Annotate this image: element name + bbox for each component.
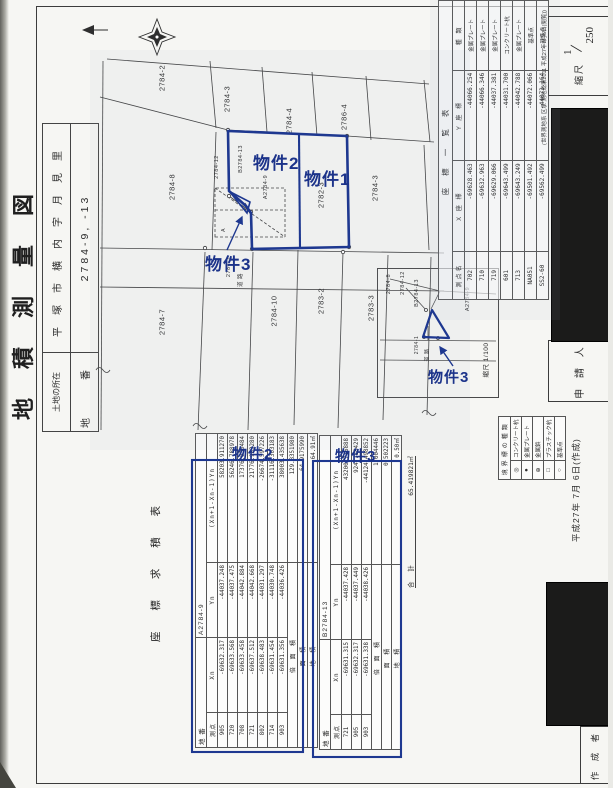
redaction-box — [546, 582, 609, 726]
column-header: X 座 標 — [453, 161, 465, 252]
area-table-row: 903 -69631.338 -44038.426 -44124.498852 — [362, 436, 372, 750]
yn-value: -44037.475 — [228, 563, 238, 638]
table-header-row: 測点 Xn Yn (Xn+1-Xn-1)Yn — [207, 434, 218, 748]
legend-row: ⊕ 金属鋲 — [533, 417, 544, 480]
xn-value: -69637.512 — [248, 638, 258, 713]
summary-value: 64.9175990 — [298, 434, 308, 563]
x-coordinate: -69632.963 — [477, 161, 489, 252]
xn-value: -69638.483 — [258, 638, 268, 713]
redaction-box — [551, 108, 609, 342]
yn-value: -44030.748 — [268, 563, 278, 638]
marker-kind: 金属プレート — [477, 1, 489, 71]
parcel-label: A2784-9 — [263, 175, 269, 199]
product-value: 58203.911270 — [218, 434, 228, 563]
coordinate-table-row: 601 -69643.499 -44031.700 コンクリート杭 — [501, 1, 513, 300]
area-table-section-label: 座 標 求 積 表 — [148, 497, 163, 642]
total-label: 合 計 — [405, 561, 415, 588]
yn-value: -44037.428 — [342, 565, 352, 640]
coordinate-table-row: 710 -69632.963 -44066.346 金属プレート — [477, 1, 489, 300]
summary-label: 倍 面 積 — [372, 565, 382, 750]
summary-label: 地 積 — [308, 563, 318, 748]
total-area-row: 合 計 65.419821㎡ — [403, 456, 416, 588]
point-name: 903 — [278, 713, 288, 748]
author-label-cell: 作 成 者 — [580, 726, 609, 784]
x-coordinate: -69501.492 — [525, 161, 537, 252]
parcel-label: 2783-3 — [367, 295, 376, 321]
parcel-header-value: A2784-9 — [196, 434, 207, 638]
area-table-row: 903 -69631.356 -44036.426 38003.435638 — [278, 434, 288, 748]
legend-row: □ プラスチック杭 — [544, 417, 555, 480]
summary-value: 129.8351980 — [288, 434, 298, 563]
property2-label: 物件2 — [253, 149, 299, 174]
yn-value: -44042.884 — [238, 563, 248, 638]
column-header: Yn — [331, 565, 342, 640]
parcel-label: B2784-13 — [238, 145, 244, 173]
marker-kind: 基準点 — [525, 1, 537, 71]
parcel-label: 2784-3 — [371, 175, 380, 201]
parcel-label: 2784-12 — [214, 155, 220, 179]
point-name: 714 — [268, 713, 278, 748]
inset-road-label: 道 路 — [424, 349, 431, 362]
area-summary-row: 地 積 0.50㎡ — [392, 436, 402, 750]
point-name: 903 — [362, 715, 372, 750]
marker-name: 金属プレート — [522, 417, 533, 461]
yn-value: -44037.449 — [352, 565, 362, 640]
point-name: 710 — [477, 251, 489, 299]
marker-name: プラスチック杭 — [544, 417, 555, 461]
point-name: 702 — [465, 251, 477, 299]
scale-denominator: 250 — [584, 27, 596, 44]
summary-label: 地 積 — [392, 565, 402, 750]
parcel-label: 2784-4 — [285, 108, 294, 134]
scanned-survey-document-page: 地積測量図 土地の所在 平塚市横内字月見里 地 番 2784-9, -13 — [0, 0, 613, 788]
marker-name: 基準点 — [555, 417, 566, 461]
xn-value: -69631.315 — [342, 640, 352, 715]
bukken2-table-title: 物件2 — [232, 443, 273, 464]
column-header: Xn — [331, 640, 342, 715]
marker-name: コンクリート杭 — [511, 417, 522, 461]
building-label: A — [221, 228, 227, 232]
bukken3-table-title: 物件3 — [335, 445, 376, 466]
scale-label: 縮尺 — [572, 63, 585, 85]
table-header-row: 測点 Xn Yn (Xn+1-Xn-1)Yn — [331, 436, 342, 750]
marker-symbol-icon: ● — [522, 461, 533, 480]
yn-value: -44031.297 — [258, 563, 268, 638]
y-coordinate: -44042.788 — [513, 70, 525, 161]
y-coordinate: -44031.700 — [501, 70, 513, 161]
coordinate-table-row: 719 -69629.066 -44037.381 金属プレート — [489, 1, 501, 300]
xn-value: -69633.568 — [228, 638, 238, 713]
yn-value: -44042.668 — [248, 563, 258, 638]
area-table-row: 714 -69631.454 -44030.748 -31116.303183 — [268, 434, 278, 748]
area-table-row: 708 -69633.458 -44042.884 17376.035484 — [238, 434, 248, 748]
geodetic-note: (世界測地系 区承 測地成果2011 平成27年7月6日(閲覧)) — [540, 10, 548, 162]
parcel-label: 2784-8 — [168, 174, 177, 200]
inset-scale-note: 縮尺 1/100 — [480, 342, 490, 377]
point-name: 721 — [342, 715, 352, 750]
table-title-row: 座 標 一 覧 表 — [439, 1, 453, 300]
column-header: Y 座 標 — [453, 70, 465, 161]
point-name: 905 — [352, 715, 362, 750]
area-summary-row: 倍 面 積 129.8351980 — [288, 434, 298, 748]
north-compass-icon — [82, 19, 175, 55]
y-coordinate: -44066.254 — [465, 70, 477, 161]
parcel-label: 2786-4 — [340, 104, 349, 130]
parcel-label: 2784-3 — [223, 86, 232, 112]
column-header: Xn — [207, 638, 218, 713]
coordinate-table-row: NA051 -69501.492 -44072.066 基準点 — [525, 1, 537, 300]
area-table-bukken3: 地 番 B2784-13 測点 Xn Yn (Xn+1-Xn-1)Yn 721 … — [319, 435, 402, 750]
area-table-row: 905 -69632.317 -44037.248 58203.911270 — [218, 434, 228, 748]
inset-parcel-label: 2784-12 — [400, 271, 406, 295]
legend-title: 境界標の種類 — [499, 417, 511, 480]
xn-value: -69632.317 — [352, 640, 362, 715]
area-table-row: 721 -69631.315 -44037.428 43200.716888 — [342, 436, 352, 750]
product-value: 38003.435638 — [278, 434, 288, 563]
column-header: 測点 — [207, 713, 218, 748]
point-name: NA051 — [525, 251, 537, 299]
property1-label: 物件1 — [304, 165, 350, 190]
point-name: 708 — [238, 713, 248, 748]
point-name: 720 — [228, 713, 238, 748]
point-name: 905 — [218, 713, 228, 748]
boundary-marker-legend: 境界標の種類 ◎ コンクリート杭 ● 金属プレート ⊕ — [498, 416, 566, 480]
parcel-label: 2784-7 — [158, 309, 167, 335]
parcel-header-row: 地 番 B2784-13 — [320, 436, 331, 750]
xn-value: -69631.356 — [278, 638, 288, 713]
page-corner-curl — [0, 762, 16, 788]
area-summary-row: 面 積 64.9175990 — [298, 434, 308, 748]
marker-symbol-icon: □ — [544, 461, 555, 480]
legend-row: ◎ コンクリート杭 — [511, 417, 522, 480]
coordinate-table-row: 702 -69628.463 -44066.254 金属プレート — [465, 1, 477, 300]
marker-symbol-icon: ⊕ — [533, 461, 544, 480]
marker-kind: 金属プレート — [513, 1, 525, 71]
parcel-header-label: 地 番 — [196, 638, 207, 748]
column-header: (Xn+1-Xn-1)Yn — [207, 434, 218, 563]
parcel-header-row: 地 番 A2784-9 — [196, 434, 207, 748]
point-name: SS2-60 — [537, 251, 549, 299]
area-summary-row: 地 積 64.91㎡ — [308, 434, 318, 748]
xn-value: -69631.338 — [362, 640, 372, 715]
yn-value: -44038.426 — [362, 565, 372, 640]
point-name: 802 — [258, 713, 268, 748]
column-header: Yn — [207, 563, 218, 638]
parcel-label: 2784-2 — [158, 65, 167, 91]
area-summary-row: 倍 面 積 1.004446 — [372, 436, 382, 750]
area-table-row: 720 -69633.568 -44037.475 56246.788978 — [228, 434, 238, 748]
yn-value: -44036.426 — [278, 563, 288, 638]
total-value: 65.419821㎡ — [406, 456, 415, 496]
landscape-document: 地積測量図 土地の所在 平塚市横内字月見里 地 番 2784-9, -13 — [0, 0, 613, 788]
coordinate-table-title: 座 標 一 覧 表 — [439, 1, 453, 300]
inset-property3-label: 物件3 — [428, 366, 469, 387]
inset-parcel-label: 2784-8 — [386, 274, 392, 294]
x-coordinate: -69643.249 — [513, 161, 525, 252]
creation-date-note: 平成27年 7月 6日(作成) — [570, 438, 582, 542]
road-label: 道 路 — [236, 273, 244, 287]
area-table-bukken2: 地 番 A2784-9 測点 Xn Yn (Xn+1-Xn-1)Yn 905 -… — [195, 433, 318, 748]
column-header: 測点 — [331, 715, 342, 750]
scale-fraction: 1 / 250 — [562, 27, 596, 57]
point-name: 601 — [501, 251, 513, 299]
x-coordinate: -69562.499 — [537, 161, 549, 252]
y-coordinate: -44037.381 — [489, 70, 501, 161]
column-header: 測点名 — [453, 251, 465, 299]
summary-value: 0.50㎡ — [392, 436, 402, 565]
parcel-header-value: B2784-13 — [320, 436, 331, 640]
x-coordinate: -69628.463 — [465, 161, 477, 252]
property3-label: 物件3 — [205, 250, 251, 275]
parcel-header-label: 地 番 — [320, 640, 331, 750]
point-name: 713 — [513, 251, 525, 299]
x-coordinate: -69643.499 — [501, 161, 513, 252]
summary-label: 面 積 — [382, 565, 392, 750]
marker-symbol-icon: ○ — [555, 461, 566, 480]
xn-value: -69631.454 — [268, 638, 278, 713]
marker-symbol-icon: ◎ — [511, 461, 522, 480]
column-header: 種 類 — [453, 1, 465, 71]
scale-cell: 縮尺 1 / 250 — [548, 16, 609, 96]
summary-value: 0.502223 — [382, 436, 392, 565]
summary-label: 面 積 — [298, 563, 308, 748]
xn-value: -69632.317 — [218, 638, 228, 713]
legend-title-row: 境界標の種類 — [499, 417, 511, 480]
x-coordinate: -69629.066 — [489, 161, 501, 252]
parcel-label: 2783-2 — [317, 288, 326, 314]
xn-value: -69633.458 — [238, 638, 248, 713]
y-coordinate: -44066.346 — [477, 70, 489, 161]
area-table-row: 802 -69638.483 -44031.297 -26674.597226 — [258, 434, 268, 748]
marker-name: 金属鋲 — [533, 417, 544, 461]
marker-kind: コンクリート杭 — [501, 1, 513, 71]
legend-row: ○ 基準点 — [555, 417, 566, 480]
applicant-label-cell: 申 請 人 — [548, 340, 609, 402]
scan-edge-shadow — [0, 0, 9, 788]
point-name: 719 — [489, 251, 501, 299]
summary-value: 64.91㎡ — [308, 434, 318, 563]
coordinate-list-table: 座 標 一 覧 表 測点名 X 座 標 Y 座 標 種 類 702 -69628… — [438, 0, 549, 300]
yn-value: -44037.248 — [218, 563, 228, 638]
scan-edge-margin — [608, 0, 613, 788]
coordinate-table-row: 713 -69643.249 -44042.788 金属プレート — [513, 1, 525, 300]
parcel-label: 2784-10 — [270, 295, 279, 326]
area-table-row: 721 -69637.512 -44042.668 21776.983280 — [248, 434, 258, 748]
area-summary-row: 面 積 0.502223 — [382, 436, 392, 750]
summary-label: 倍 面 積 — [288, 563, 298, 748]
area-table-row: 905 -69632.317 -44037.449 924.788429 — [352, 436, 362, 750]
scale-numerator: 1 — [562, 50, 574, 56]
marker-kind: 金属プレート — [489, 1, 501, 71]
inset-parcel-label: B2784-13 — [414, 279, 420, 307]
legend-row: ● 金属プレート — [522, 417, 533, 480]
point-name: 721 — [248, 713, 258, 748]
y-coordinate: -44072.066 — [525, 70, 537, 161]
marker-kind: 金属プレート — [465, 1, 477, 71]
table-header-row: 測点名 X 座 標 Y 座 標 種 類 — [453, 1, 465, 300]
inset-road-parcel-label: 2784-1 — [414, 336, 420, 355]
